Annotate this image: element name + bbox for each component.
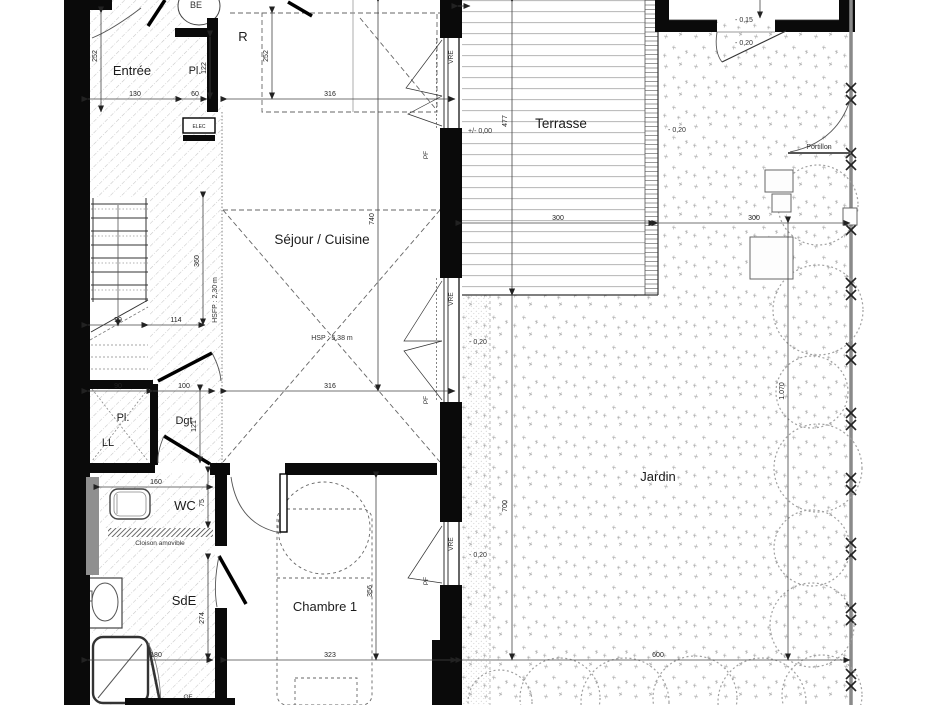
dim-90-stairs: 90 [114,317,122,324]
label-r: R [238,29,247,44]
label-pl-top: Pl. [189,65,202,77]
level-minus-020-strip-2: - 0,20 [469,552,487,559]
dim-360: 360 [194,255,201,267]
level-minus-020-shed: - 0,20 [735,40,753,47]
dim-316-top: 316 [324,91,336,98]
dim-316-sejour: 316 [324,383,336,390]
label-be: BE [190,0,202,10]
label-pf-3: PF [423,577,430,585]
grey-duct-wall [86,477,99,575]
terrace-deck [462,0,658,295]
label-pf-1: PF [423,151,430,159]
floor-plan-svg: 130 60 316 90 114 90 100 316 160 180 323… [0,0,940,705]
dim-740: 740 [369,213,376,225]
dim-1070: 1.070 [779,382,786,400]
label-sejour: Séjour / Cuisine [274,232,369,247]
dim-700: 700 [502,500,509,512]
dim-60: 60 [191,91,199,98]
label-hsfp: HSFP : 2,30 m [212,277,219,323]
staircase [89,197,150,387]
level-zero: +/- 0,00 [468,128,492,135]
dim-300-terrace: 300 [552,215,564,222]
label-dgt: Dgt [175,415,192,427]
dim-130: 130 [129,91,141,98]
floor-plan: 130 60 316 90 114 90 100 316 160 180 323… [0,0,940,705]
label-terrasse: Terrasse [535,116,587,131]
level-minus-020-garden-top: - 0,20 [668,127,686,134]
label-entree: Entrée [113,63,151,78]
label-vre-3: VRE [448,537,455,551]
label-jardin: Jardin [640,469,675,484]
label-elec: ELEC [192,124,205,130]
dim-122: 122 [201,62,208,74]
wc-vanity [110,489,150,519]
label-sde: SdE [172,593,197,608]
dim-180: 180 [150,652,162,659]
label-pl: Pl. [117,412,130,424]
dim-300-garden: 300 [748,215,760,222]
label-portillon: Portillon [806,144,831,151]
dim-75: 75 [199,499,206,507]
label-cloison-amovible: Cloison amovible [135,540,185,547]
label-wc: WC [174,498,196,513]
label-chambre-1: Chambre 1 [293,599,357,614]
label-hsp: HSP : 5,38 m [311,335,353,342]
dim-252-r: 252 [263,50,270,62]
label-of: OF [183,694,192,701]
dim-90-closet: 90 [114,383,122,390]
dim-600: 600 [652,652,664,659]
dim-477: 477 [502,115,509,127]
label-vre-1: VRE [448,50,455,64]
dim-160: 160 [150,479,162,486]
dim-100: 100 [178,383,190,390]
label-ll: LL [102,437,114,449]
level-minus-015: - 0,15 [735,17,753,24]
label-vre-2: VRE [448,292,455,306]
dim-356: 356 [367,585,374,597]
level-minus-020-strip-1: - 0,20 [469,339,487,346]
dim-114: 114 [170,317,181,324]
label-pf-2: PF [423,396,430,404]
dim-252-entree: 252 [92,50,99,62]
dim-274: 274 [199,612,206,624]
cloison-amovible-partition [108,528,213,537]
dim-323: 323 [324,652,336,659]
